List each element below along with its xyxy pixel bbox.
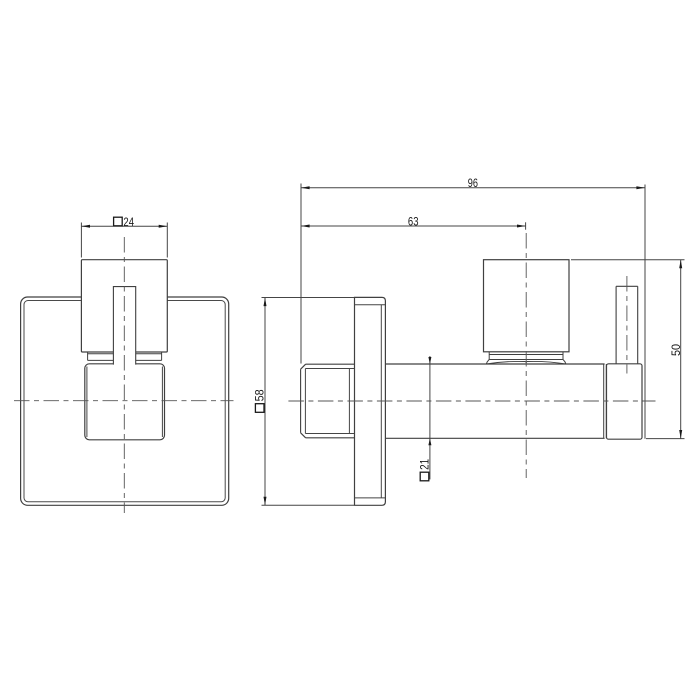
svg-text:24: 24 xyxy=(123,215,134,229)
svg-text:63: 63 xyxy=(408,215,419,229)
svg-text:58: 58 xyxy=(253,389,267,401)
svg-text:96: 96 xyxy=(468,176,479,190)
svg-text:21: 21 xyxy=(418,459,432,470)
svg-text:50: 50 xyxy=(669,344,683,356)
